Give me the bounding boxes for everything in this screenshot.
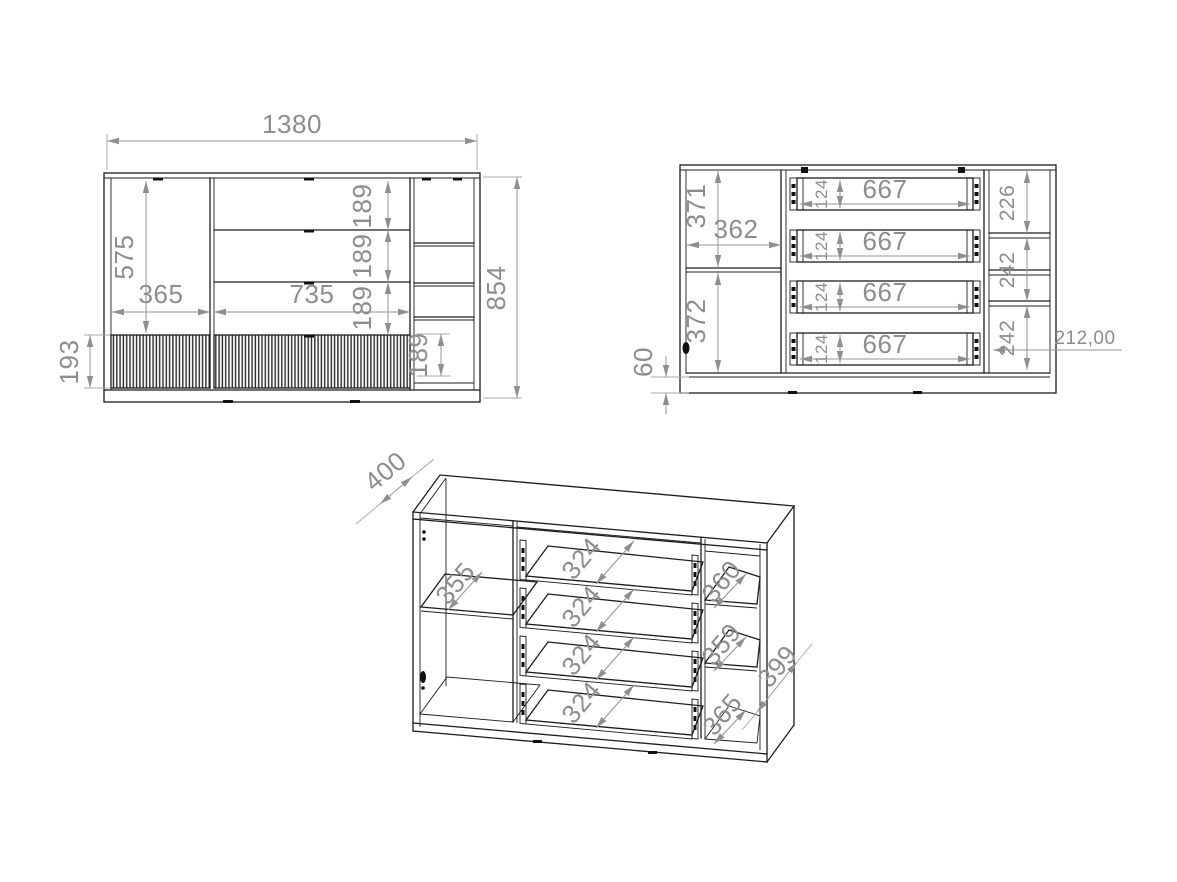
foot-mark bbox=[648, 751, 657, 754]
dim-label-depth: 400 bbox=[358, 445, 412, 497]
dim-label-drawer-depth-1: 324 bbox=[555, 531, 607, 585]
dim-base-front-height: 193 bbox=[54, 335, 110, 388]
dim-label-depth-callout: 212,00 bbox=[1054, 328, 1115, 349]
dim-drawer-inner-2: 667 124 bbox=[800, 226, 970, 261]
dim-label-drawer-height-1: 124 bbox=[812, 179, 831, 209]
dim-drawer-inner-1: 667 124 bbox=[800, 174, 970, 209]
dim-drawer-inner-3: 667 124 bbox=[800, 277, 970, 312]
dim-label-plinth: 60 bbox=[628, 347, 658, 377]
dim-label-drawer-height-4: 124 bbox=[812, 334, 831, 364]
dim-label-right-2: 242 bbox=[996, 252, 1019, 289]
technical-drawing-page: 1380 854 575 365 735 bbox=[0, 0, 1177, 882]
foot-mark bbox=[788, 391, 797, 394]
dim-label-right-niche-height: 189 bbox=[403, 333, 433, 378]
dim-right-shelf-depths: 360 359 365 bbox=[695, 554, 748, 744]
dim-left-shelf-depth: 355 bbox=[429, 556, 482, 610]
dim-label-drawer-width-2: 667 bbox=[863, 226, 908, 256]
dim-label-drawer-width-3: 667 bbox=[863, 277, 908, 307]
drawer-3d-3 bbox=[520, 636, 703, 691]
dim-drawer-inner-4: 667 124 bbox=[800, 329, 970, 364]
furniture-dimension-drawing: 1380 854 575 365 735 bbox=[0, 0, 1177, 882]
dim-label-overall-height: 854 bbox=[481, 266, 511, 311]
dim-label-drawer-depth-3: 324 bbox=[555, 627, 607, 681]
dim-lower-left-compartment: 372 bbox=[681, 273, 718, 372]
dim-label-drawer-height-3: 189 bbox=[347, 286, 377, 331]
mounting-hardware bbox=[958, 167, 965, 173]
dim-label-door-width: 365 bbox=[139, 279, 184, 309]
dim-label-drawer-depth-4: 324 bbox=[555, 675, 607, 729]
dim-door-width: 365 bbox=[112, 279, 210, 312]
dim-label-left-width: 362 bbox=[714, 214, 759, 244]
dim-label-lower-left: 372 bbox=[681, 299, 711, 344]
dim-label-door-height: 575 bbox=[109, 235, 139, 280]
dim-right-niche-height: 189 bbox=[403, 333, 450, 378]
foot-mark bbox=[533, 740, 542, 743]
perspective-dimensions: 400 355 324 324 324 324 360 359 bbox=[356, 445, 812, 744]
dim-label-upper-left: 371 bbox=[681, 184, 711, 229]
dim-side-panel-depth: 399 bbox=[742, 639, 812, 730]
fluted-panel-right bbox=[214, 335, 410, 388]
fluted-panel-left bbox=[111, 335, 210, 388]
dim-label-base-front-height: 193 bbox=[54, 340, 84, 385]
dim-label-right-3: 242 bbox=[996, 320, 1019, 357]
dim-door-height: 575 bbox=[109, 181, 146, 333]
dim-label-drawer-width-1: 667 bbox=[863, 174, 908, 204]
dim-label-drawer-height-2: 189 bbox=[347, 234, 377, 279]
hinge-marks bbox=[420, 530, 426, 690]
dim-label-right-1: 226 bbox=[996, 185, 1019, 222]
interior-view-dimensions: 371 362 372 60 667 124 bbox=[628, 171, 1122, 414]
drawer-3d-1 bbox=[520, 540, 703, 595]
perspective-view: 400 355 324 324 324 324 360 359 bbox=[356, 445, 812, 762]
dim-overall-height: 854 bbox=[481, 177, 522, 398]
dim-overall-width: 1380 bbox=[107, 109, 477, 170]
dim-label-left-shelf-depth: 355 bbox=[429, 556, 481, 610]
dim-label-drawer-width-4: 667 bbox=[863, 329, 908, 359]
dim-label-drawer-height-1: 189 bbox=[347, 184, 377, 229]
dim-label-drawer-section-width: 735 bbox=[290, 279, 335, 309]
drawer-3d-2 bbox=[520, 588, 703, 643]
dim-label-drawer-height-3: 124 bbox=[812, 282, 831, 312]
mounting-hardware bbox=[801, 167, 808, 173]
drawer-3d-4 bbox=[520, 684, 703, 739]
dim-label-drawer-depth-2: 324 bbox=[555, 579, 607, 633]
front-view: 1380 854 575 365 735 bbox=[54, 109, 522, 403]
dim-label-overall-width: 1380 bbox=[262, 109, 322, 139]
dim-drawer-section-width: 735 bbox=[214, 279, 410, 312]
handle-notches bbox=[153, 178, 462, 338]
foot-mark bbox=[913, 391, 922, 394]
interior-view: 371 362 372 60 667 124 bbox=[628, 165, 1122, 414]
dim-label-right-shelf-3: 365 bbox=[696, 687, 748, 741]
dim-label-right-shelf-2: 359 bbox=[695, 617, 747, 671]
dim-upper-left-compartment: 371 bbox=[681, 171, 718, 267]
dim-label-drawer-height-2: 124 bbox=[812, 231, 831, 261]
